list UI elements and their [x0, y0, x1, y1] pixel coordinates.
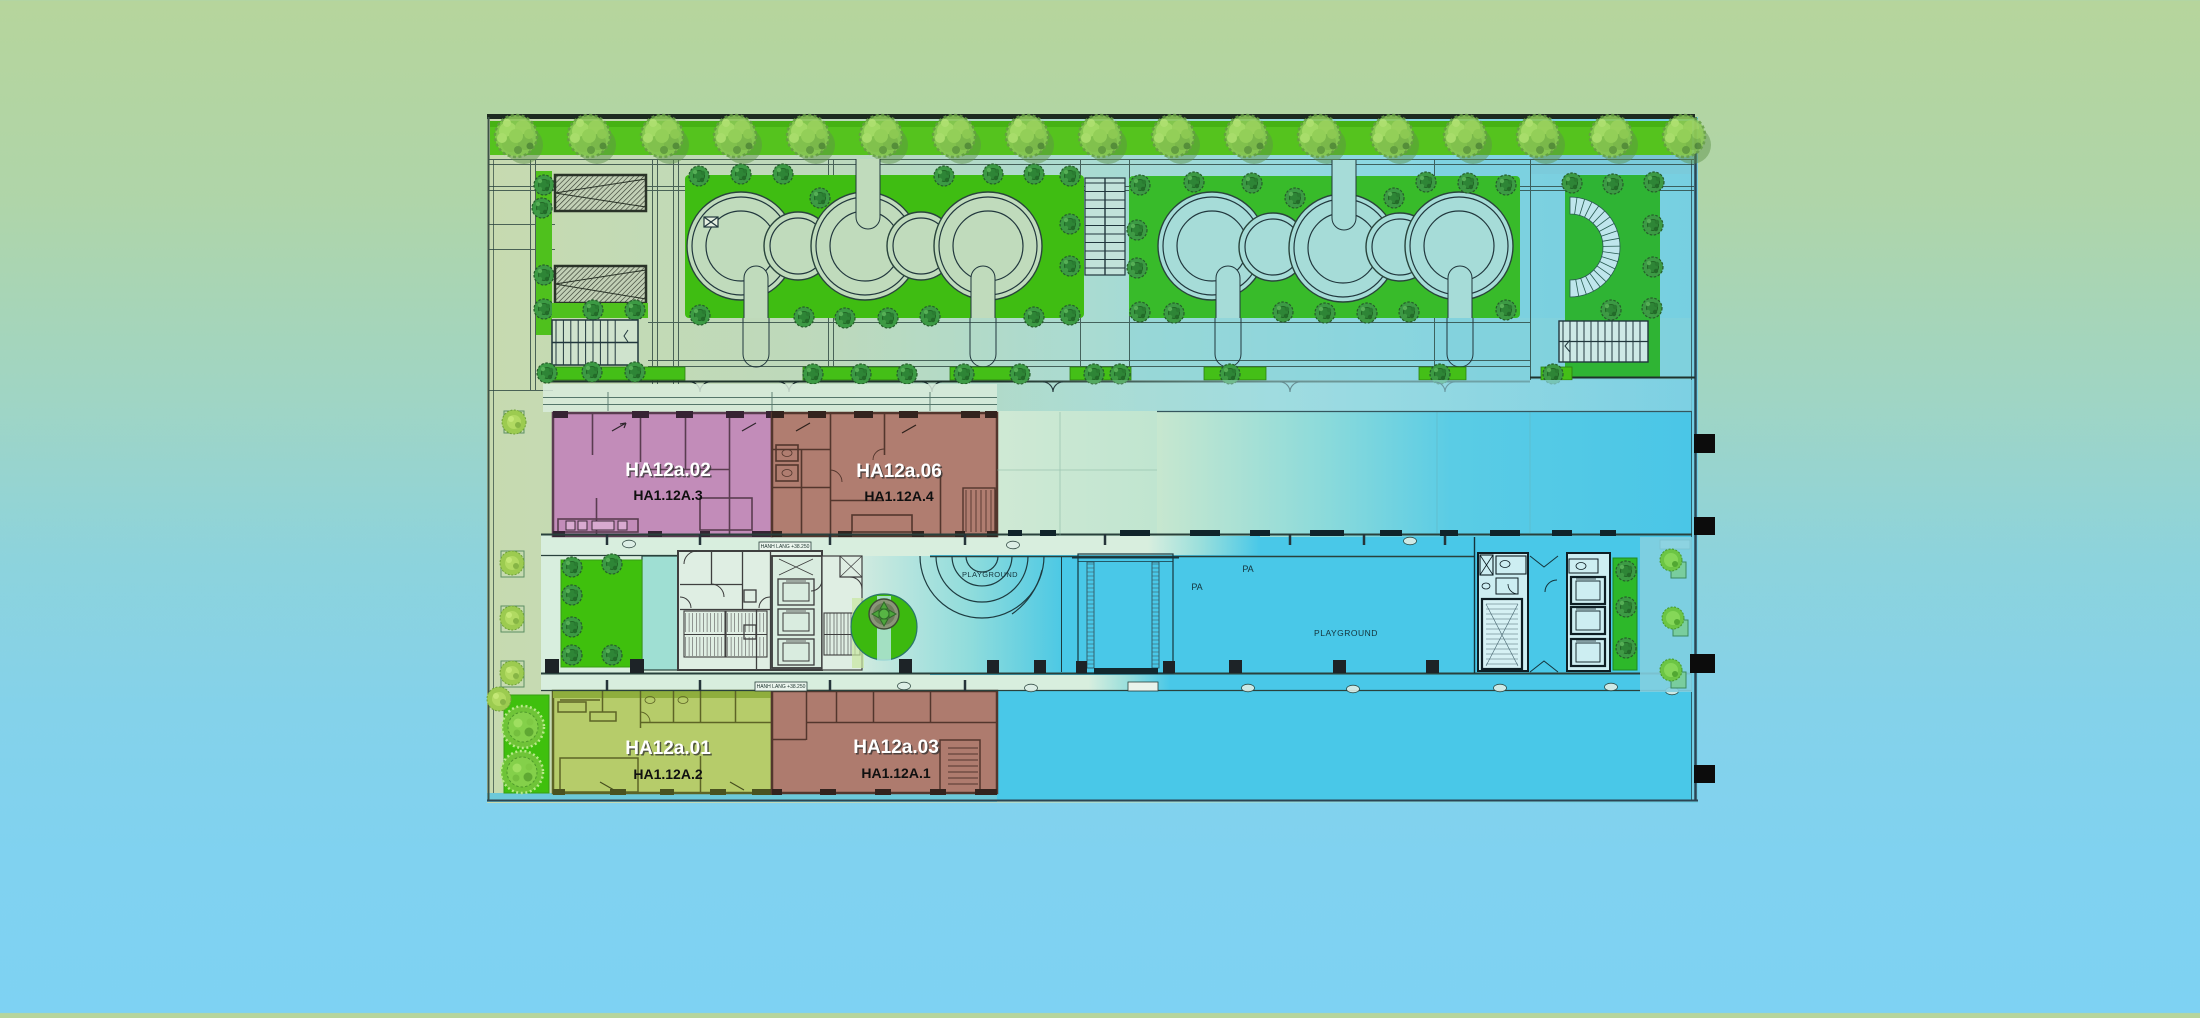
svg-text:HA1.12A.2: HA1.12A.2 — [633, 766, 702, 782]
svg-text:PA: PA — [1242, 564, 1253, 574]
svg-text:HA12a.02: HA12a.02 — [625, 460, 711, 481]
svg-text:PLAYGROUND: PLAYGROUND — [962, 570, 1018, 579]
svg-text:HA1.12A.1: HA1.12A.1 — [861, 765, 930, 781]
svg-text:HANH LANG +38.250: HANH LANG +38.250 — [761, 544, 810, 550]
svg-text:HA12a.06: HA12a.06 — [856, 461, 942, 482]
svg-text:HA12a.03: HA12a.03 — [853, 737, 939, 758]
svg-text:HA1.12A.4: HA1.12A.4 — [864, 488, 933, 504]
svg-text:PLAYGROUND: PLAYGROUND — [1314, 628, 1378, 638]
svg-text:HA1.12A.3: HA1.12A.3 — [633, 487, 702, 503]
svg-text:HA12a.01: HA12a.01 — [625, 738, 711, 759]
svg-text:PA: PA — [1191, 582, 1202, 592]
svg-text:HANH LANG +38.250: HANH LANG +38.250 — [757, 684, 806, 690]
